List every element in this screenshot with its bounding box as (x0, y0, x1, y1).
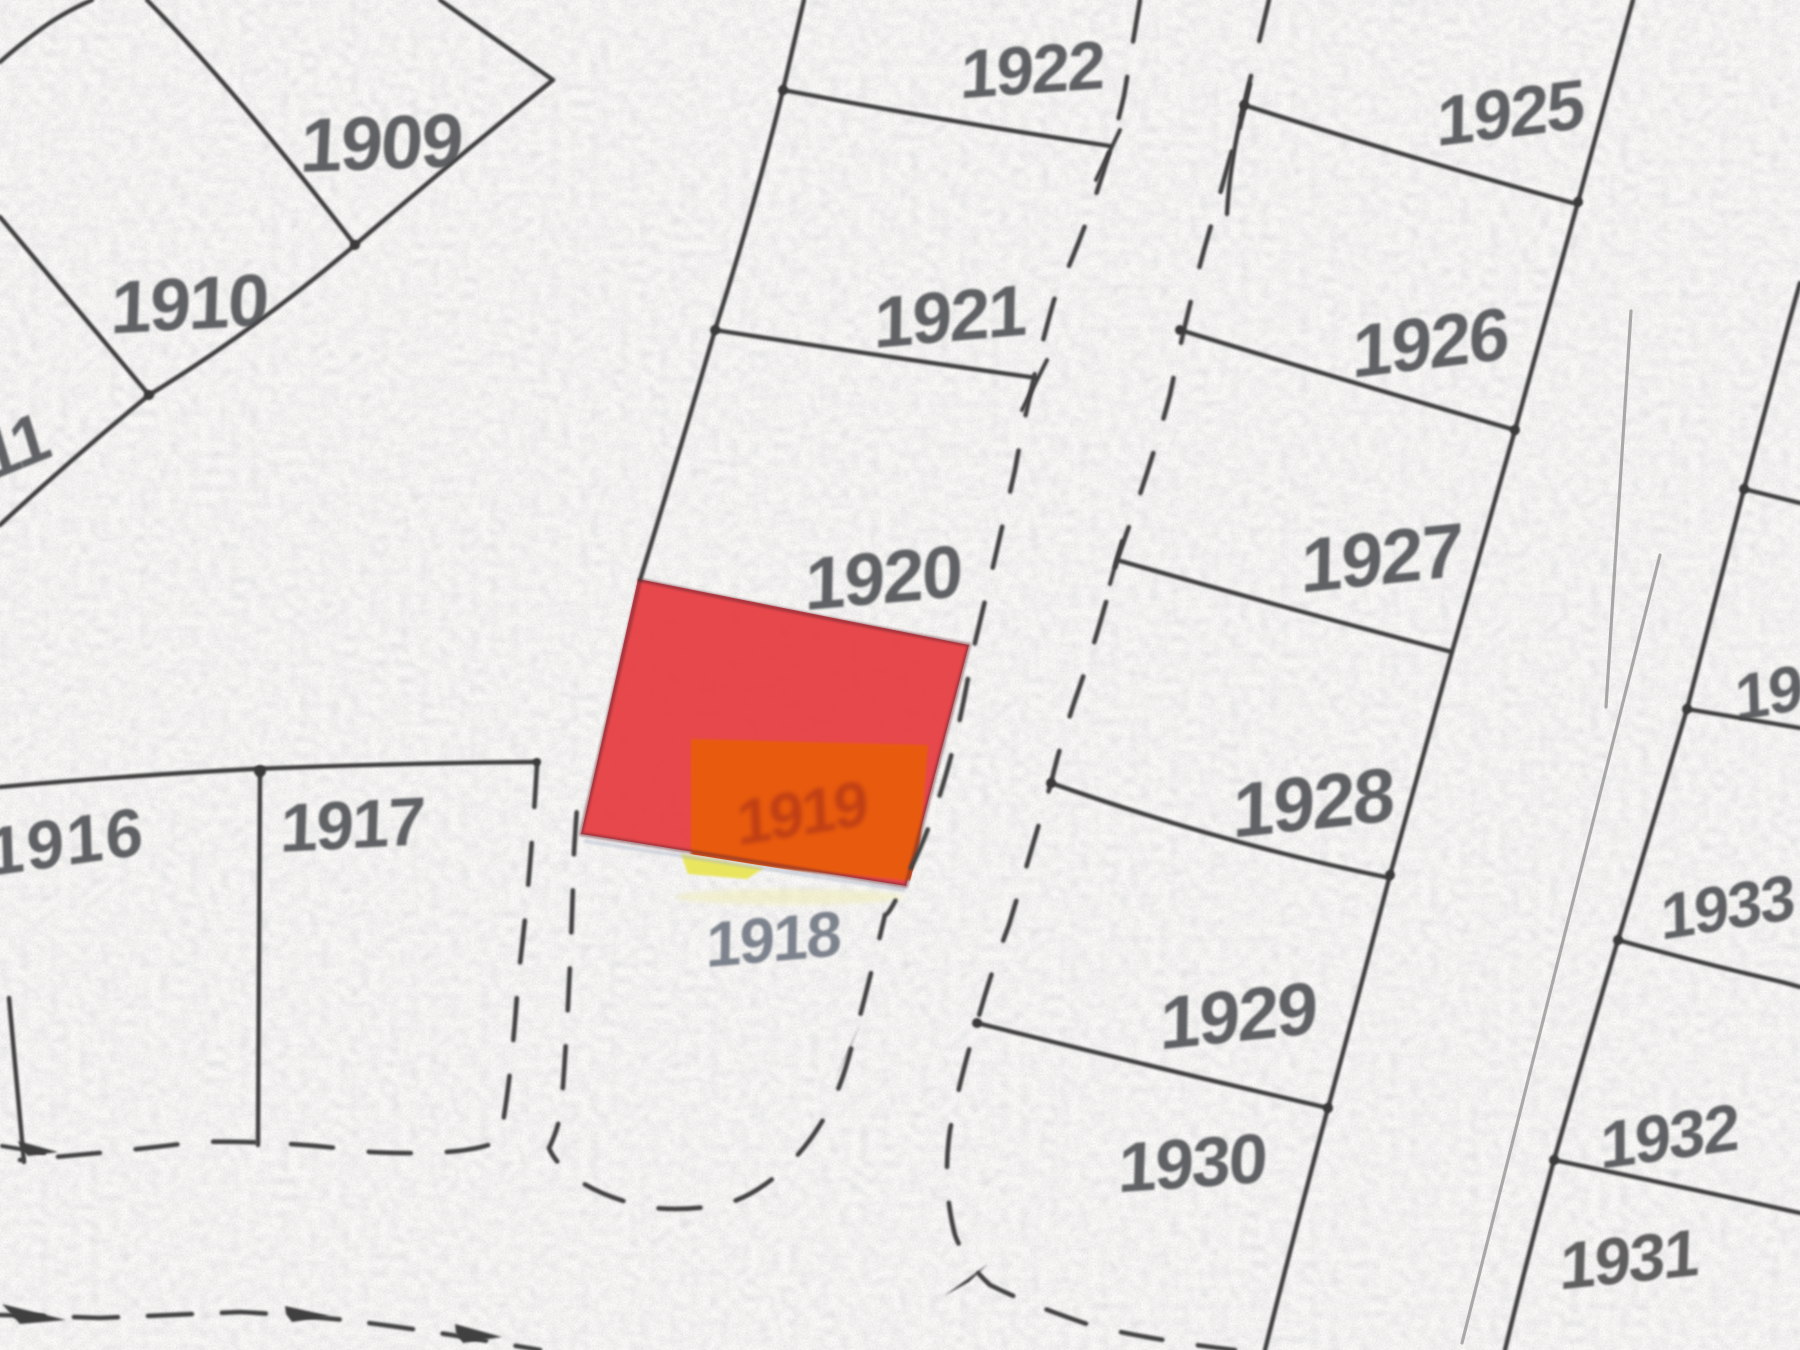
svg-text:1918: 1918 (705, 897, 840, 981)
svg-text:1921: 1921 (873, 270, 1027, 364)
svg-text:1930: 1930 (1117, 1118, 1267, 1207)
svg-text:1929: 1929 (1159, 966, 1316, 1066)
svg-text:1909: 1909 (298, 98, 463, 189)
svg-text:1928: 1928 (1232, 752, 1394, 854)
svg-text:1922: 1922 (959, 27, 1105, 113)
svg-text:1910: 1910 (109, 258, 268, 349)
svg-text:1917: 1917 (279, 783, 425, 867)
svg-text:1927: 1927 (1300, 508, 1462, 610)
svg-text:19: 19 (1734, 651, 1800, 735)
svg-text:1931: 1931 (1559, 1216, 1701, 1305)
svg-text:1920: 1920 (804, 529, 961, 626)
